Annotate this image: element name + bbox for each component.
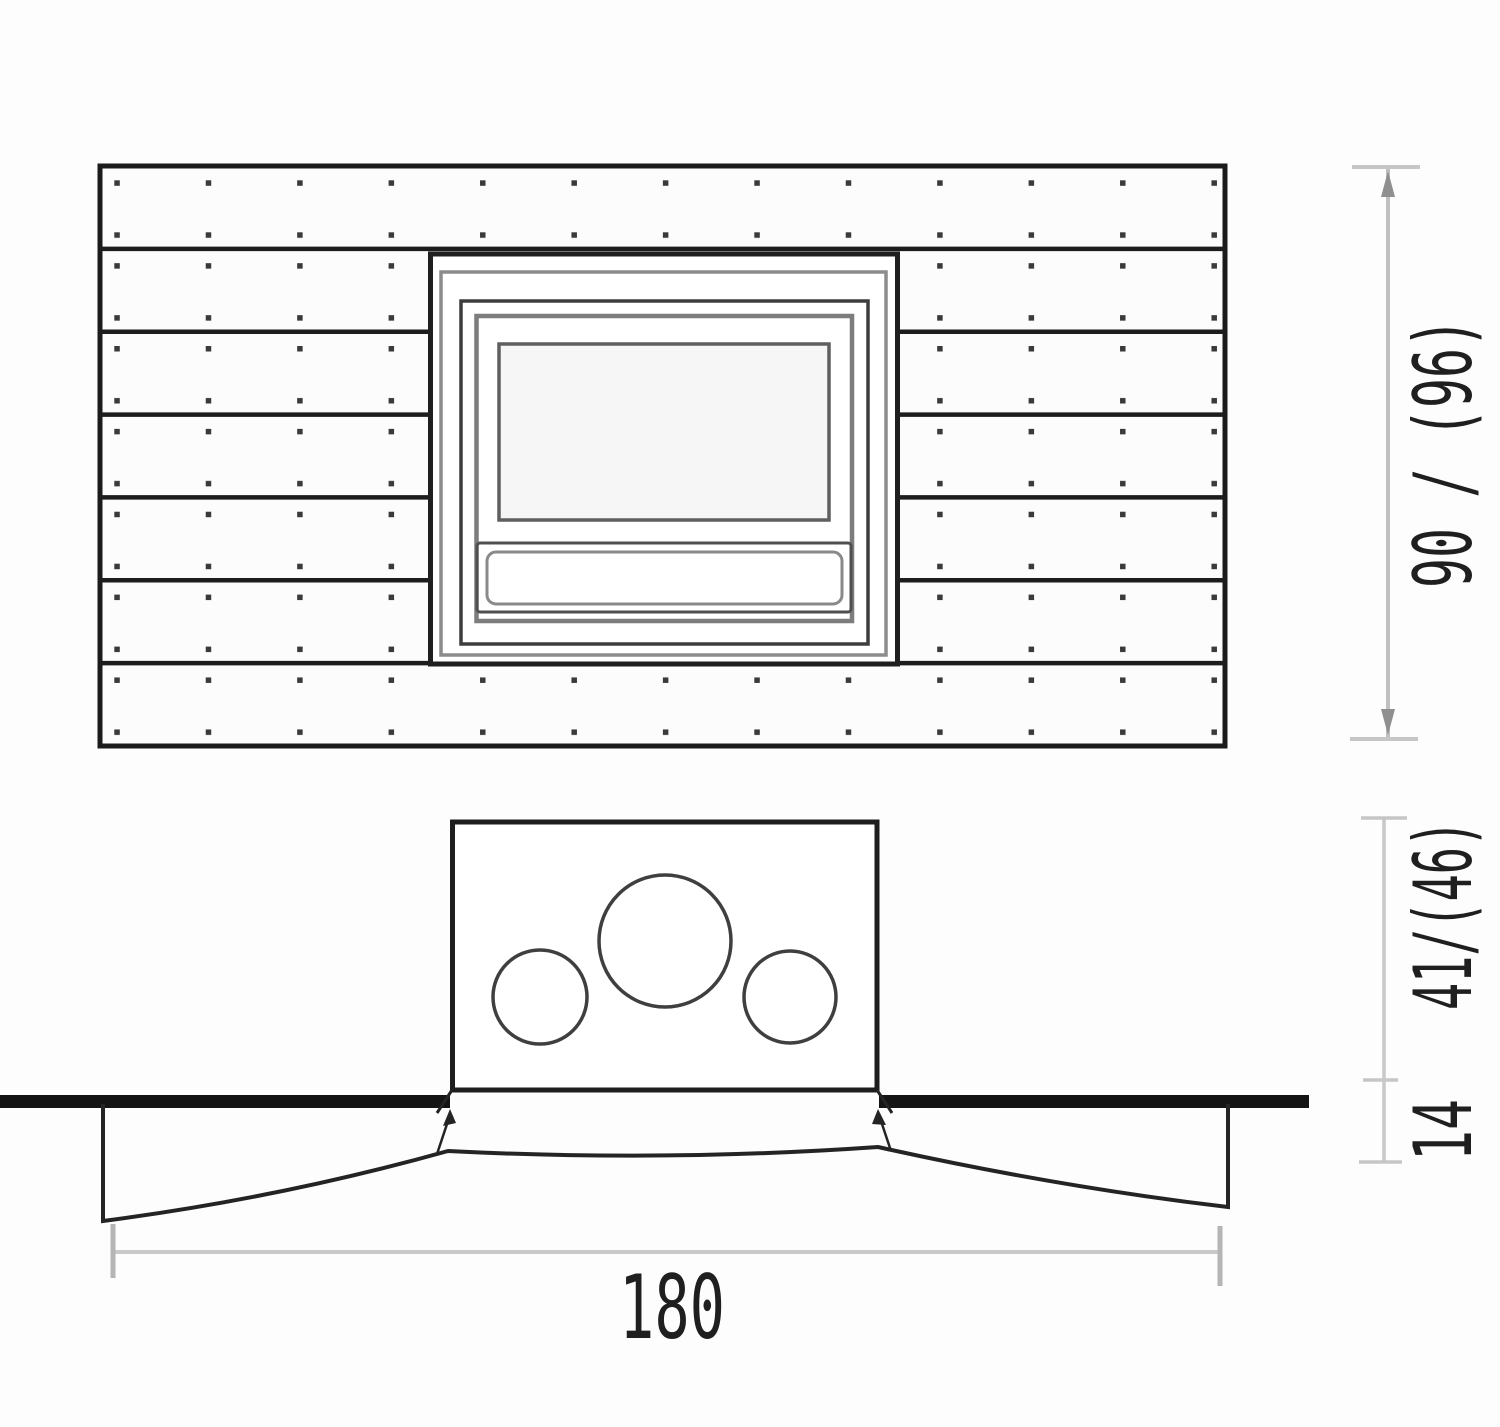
curved-panel-edge bbox=[103, 1104, 1228, 1221]
depth-dim-upper-label: 41/(46) bbox=[1397, 820, 1490, 1010]
stove-insert-front bbox=[431, 254, 898, 664]
height-dim-arrow-up bbox=[1381, 171, 1395, 197]
height-dim-arrow-down bbox=[1381, 709, 1395, 735]
height-dim-label: 90 / (96) bbox=[1397, 318, 1490, 588]
technical-drawing-page: { "drawing": { "type": "installation-dim… bbox=[0, 0, 1500, 1427]
width-dim-label: 180 bbox=[619, 1256, 725, 1359]
height-dimension: 90 / (96) bbox=[1350, 167, 1490, 739]
corner-arrow-right bbox=[872, 1109, 886, 1125]
corner-arrow-left bbox=[443, 1109, 456, 1126]
plank-bottom-dots bbox=[102, 663, 1223, 744]
drawing-canvas: 90 / (96) 41/(46) 14 180 bbox=[0, 0, 1500, 1427]
plan-view bbox=[0, 822, 1309, 1221]
plank-right-column-dots bbox=[898, 249, 1223, 663]
plank-left-column-dots bbox=[102, 249, 428, 663]
depth-dim-lower-label: 14 bbox=[1397, 1099, 1490, 1161]
insert-glass-window bbox=[499, 344, 829, 520]
plank-top-dots bbox=[102, 168, 1223, 249]
width-dimension: 180 bbox=[112, 1224, 1220, 1359]
depth-dimension: 41/(46) 14 bbox=[1359, 818, 1490, 1162]
installation-diagram: 90 / (96) 41/(46) 14 180 bbox=[0, 0, 1500, 1427]
